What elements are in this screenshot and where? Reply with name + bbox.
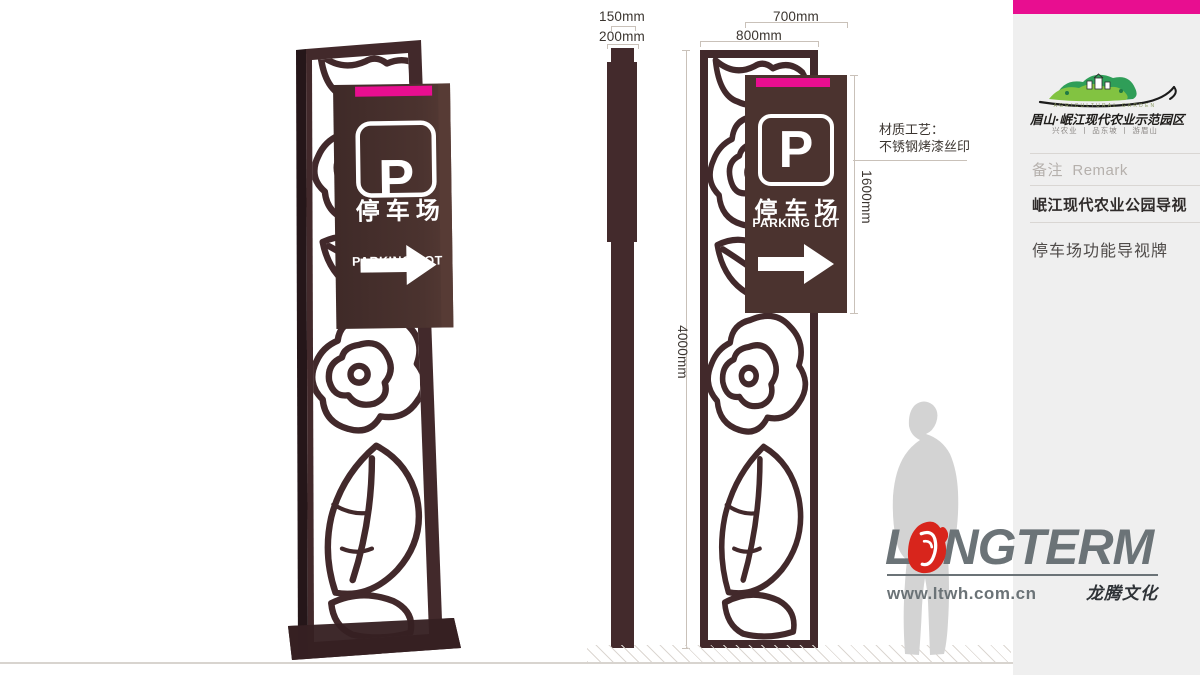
agricultural-garden-logo-icon: [1037, 68, 1183, 108]
ground-line: [0, 662, 1013, 664]
langterm-rule: [887, 574, 1158, 576]
material-note-line1: 材质工艺：: [879, 121, 970, 138]
langterm-wordmark: L NGTERM: [885, 520, 1153, 576]
parking-symbol-box: P: [758, 114, 834, 186]
sidebar-divider: [1030, 185, 1200, 186]
material-note-line2: 不锈钢烤漆丝印: [879, 138, 970, 155]
remark-en: Remark: [1072, 162, 1128, 179]
sign-title-en: PARKING LOT: [745, 216, 847, 230]
dim-line-1600: [854, 75, 855, 313]
brand-slogan: 兴农业 丨 品东坡 丨 游眉山: [1035, 125, 1175, 136]
material-note: 材质工艺： 不锈钢烤漆丝印: [879, 121, 970, 155]
langterm-company-cn: 龙腾文化: [1086, 579, 1158, 604]
langterm-seal-icon: [906, 520, 948, 576]
dim-pole-top-width: 150mm: [582, 9, 662, 24]
magenta-topbar: [355, 86, 432, 97]
project-title: 岷江现代农业公园导视: [1032, 194, 1187, 215]
sidebar-divider: [1030, 222, 1200, 223]
sign-panel-3d: P 停车场 PARKING LOT: [333, 83, 453, 329]
dim-bracket: [700, 41, 819, 47]
langterm-suffix: NGTERM: [943, 520, 1154, 574]
pole-side-upper: [607, 62, 637, 242]
sign-title-cn: 停车场: [356, 196, 446, 225]
material-note-underline: [853, 160, 967, 161]
item-title: 停车场功能导视牌: [1032, 237, 1168, 261]
parking-p-symbol: P: [779, 124, 814, 176]
langterm-website: www.ltwh.com.cn: [887, 584, 1037, 604]
dim-total-height: 4000mm: [675, 322, 690, 382]
remark-label: 备注 Remark: [1032, 159, 1128, 180]
pole-side-cap: [611, 48, 634, 62]
magenta-topbar: [756, 78, 830, 87]
sidebar-divider: [1030, 153, 1200, 154]
pole-side-lower: [611, 242, 634, 648]
dim-panel-height: 1600mm: [859, 168, 874, 226]
sidebar-magenta-bar: [1013, 0, 1200, 14]
frame-side-face: [296, 49, 308, 658]
dim-pole-width: 200mm: [582, 29, 662, 44]
perspective-view: P 停车场 PARKING LOT: [280, 30, 480, 675]
arrow-right-icon: [756, 240, 836, 288]
remark-cn: 备注: [1032, 162, 1063, 179]
signage-design-sheet: P 停车场 PARKING LOT 150mm 200mm 4000mm 700…: [0, 0, 1200, 675]
langterm-footer-row: www.ltwh.com.cn 龙腾文化: [887, 579, 1158, 604]
sign-panel-front: P 停车场 PARKING LOT: [745, 75, 847, 313]
